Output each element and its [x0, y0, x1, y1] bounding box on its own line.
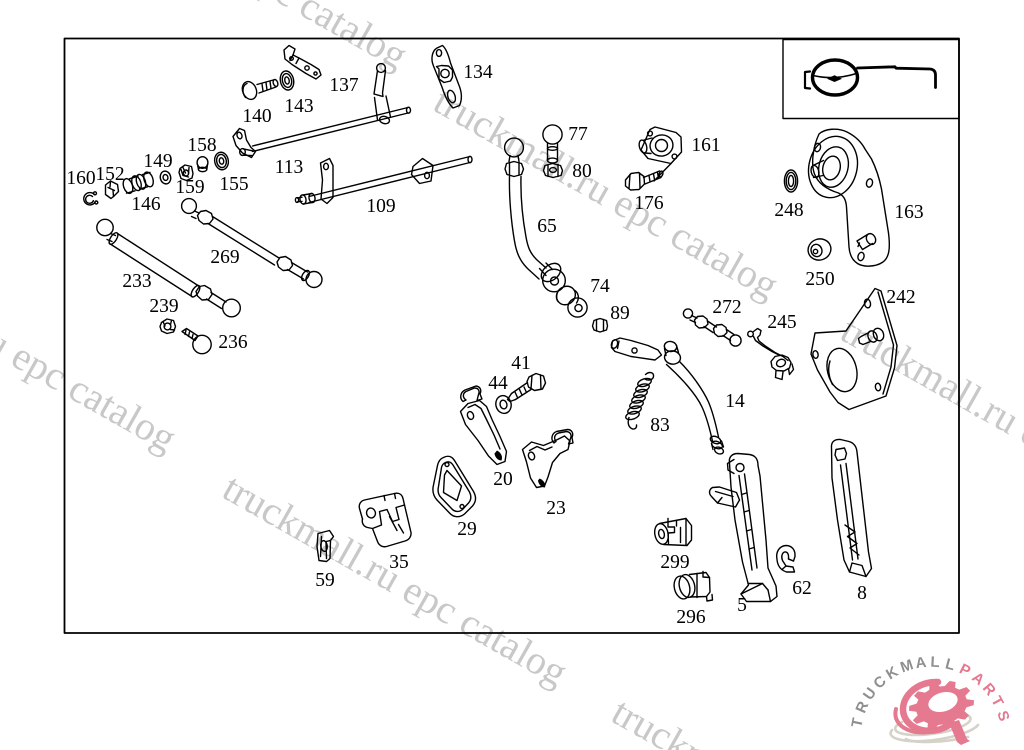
svg-text:296: 296: [676, 607, 706, 628]
svg-text:248: 248: [774, 200, 803, 221]
svg-text:8: 8: [857, 583, 867, 604]
svg-text:M: M: [898, 656, 915, 676]
svg-text:R: R: [979, 680, 999, 699]
svg-text:161: 161: [691, 135, 720, 156]
svg-text:L: L: [944, 655, 957, 674]
svg-text:P: P: [957, 661, 974, 681]
svg-text:T: T: [987, 693, 1006, 709]
svg-text:163: 163: [894, 202, 923, 223]
svg-text:158: 158: [187, 135, 216, 156]
svg-text:62: 62: [792, 578, 812, 599]
svg-text:S: S: [993, 709, 1012, 723]
svg-text:U: U: [860, 685, 880, 704]
svg-text:242: 242: [886, 287, 915, 308]
svg-text:A: A: [914, 654, 927, 672]
svg-text:14: 14: [725, 391, 745, 412]
svg-text:5: 5: [737, 595, 747, 616]
svg-text:155: 155: [219, 174, 248, 195]
svg-text:23: 23: [546, 498, 566, 519]
svg-text:29: 29: [457, 519, 477, 540]
svg-text:L: L: [930, 654, 940, 671]
svg-text:146: 146: [131, 194, 161, 215]
svg-text:65: 65: [537, 216, 557, 237]
svg-text:134: 134: [463, 62, 493, 83]
svg-text:143: 143: [284, 96, 313, 117]
svg-text:truckmall.ru epc catalog: truckmall.ru epc catalog: [0, 231, 184, 461]
svg-text:236: 236: [218, 332, 248, 353]
svg-text:113: 113: [275, 157, 304, 178]
svg-text:160: 160: [66, 168, 95, 189]
svg-text:T: T: [848, 717, 866, 729]
svg-text:176: 176: [634, 193, 664, 214]
svg-text:truckmall.ru epc catalog: truckmall.ru epc catalog: [427, 78, 787, 308]
svg-text:239: 239: [149, 296, 178, 317]
svg-text:K: K: [883, 663, 901, 683]
svg-text:89: 89: [610, 303, 630, 324]
svg-text:149: 149: [143, 151, 172, 172]
svg-text:159: 159: [175, 177, 204, 198]
svg-text:C: C: [870, 672, 890, 692]
svg-text:80: 80: [572, 161, 592, 182]
svg-text:272: 272: [712, 297, 741, 318]
svg-text:233: 233: [122, 271, 151, 292]
svg-text:250: 250: [805, 269, 834, 290]
svg-text:269: 269: [210, 247, 239, 268]
svg-text:109: 109: [366, 196, 395, 217]
svg-text:299: 299: [660, 552, 689, 573]
svg-text:140: 140: [242, 106, 271, 127]
svg-text:83: 83: [650, 415, 670, 436]
svg-text:137: 137: [329, 75, 359, 96]
svg-text:41: 41: [511, 353, 531, 374]
svg-text:35: 35: [389, 552, 409, 573]
svg-text:59: 59: [315, 570, 335, 591]
svg-text:44: 44: [488, 373, 508, 394]
svg-text:152: 152: [95, 164, 124, 185]
svg-text:245: 245: [767, 312, 796, 333]
svg-text:77: 77: [568, 124, 588, 145]
svg-text:R: R: [852, 699, 872, 716]
svg-text:74: 74: [590, 276, 610, 297]
svg-text:20: 20: [493, 469, 513, 490]
